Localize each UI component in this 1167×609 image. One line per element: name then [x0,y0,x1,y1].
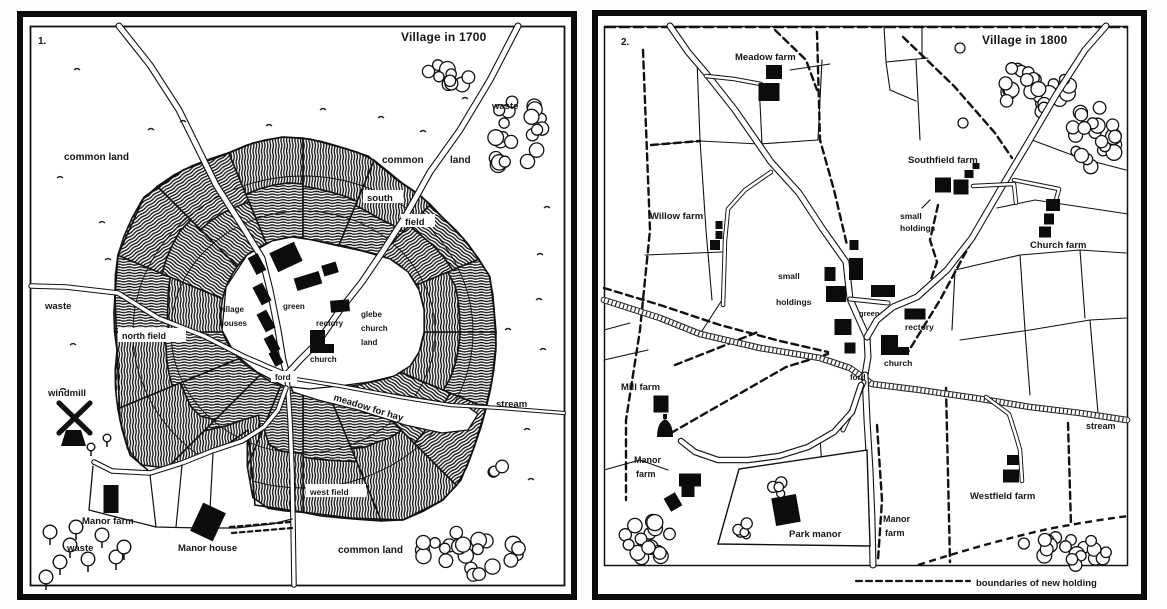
svg-text:glebe: glebe [361,310,382,319]
svg-text:common land: common land [64,152,129,163]
svg-text:windmill: windmill [47,388,86,399]
svg-text:Meadow farm: Meadow farm [735,52,796,63]
svg-text:Manor: Manor [634,455,661,465]
svg-text:green: green [283,302,305,311]
svg-text:field: field [405,217,425,228]
svg-text:2.: 2. [621,37,630,48]
svg-text:land: land [361,338,378,347]
svg-text:waste: waste [44,301,71,312]
svg-text:Manor: Manor [883,514,910,524]
svg-text:farm: farm [636,469,656,479]
svg-text:church: church [884,358,912,368]
svg-text:Church farm: Church farm [1030,240,1086,251]
svg-text:stream: stream [496,399,527,410]
svg-text:common land: common land [338,545,403,556]
svg-text:Manor farm: Manor farm [82,516,134,527]
svg-text:Mill farm: Mill farm [621,382,660,393]
svg-text:small: small [778,271,800,281]
svg-text:stream: stream [1086,421,1116,431]
svg-text:north field: north field [122,331,166,341]
svg-text:Westfield farm: Westfield farm [970,491,1035,502]
svg-text:village: village [219,305,244,314]
svg-text:green: green [859,309,880,318]
svg-text:church: church [361,324,388,333]
svg-text:common: common [382,155,424,166]
svg-text:holdings: holdings [900,223,936,233]
svg-text:land: land [450,155,471,166]
svg-text:Manor house: Manor house [178,543,237,554]
svg-text:Village in 1800: Village in 1800 [982,33,1068,47]
svg-text:rectory: rectory [905,322,934,332]
svg-text:boundaries of new holding: boundaries of new holding [976,578,1097,589]
svg-text:holdings: holdings [776,297,812,307]
svg-text:church: church [310,355,337,364]
svg-text:waste: waste [66,543,93,554]
svg-text:west field: west field [309,487,349,497]
svg-text:Village in 1700: Village in 1700 [401,30,487,44]
svg-text:small: small [900,211,922,221]
svg-text:houses: houses [219,319,248,328]
svg-text:south: south [367,193,393,204]
svg-text:farm: farm [885,528,905,538]
svg-text:Park manor: Park manor [789,529,842,540]
svg-text:Willow farm: Willow farm [650,211,703,222]
svg-text:1.: 1. [38,36,47,47]
svg-text:ford: ford [275,373,291,382]
svg-text:rectory: rectory [316,319,344,328]
svg-text:waste: waste [491,101,518,112]
svg-text:Southfield farm: Southfield farm [908,155,978,166]
svg-text:ford: ford [850,373,866,382]
